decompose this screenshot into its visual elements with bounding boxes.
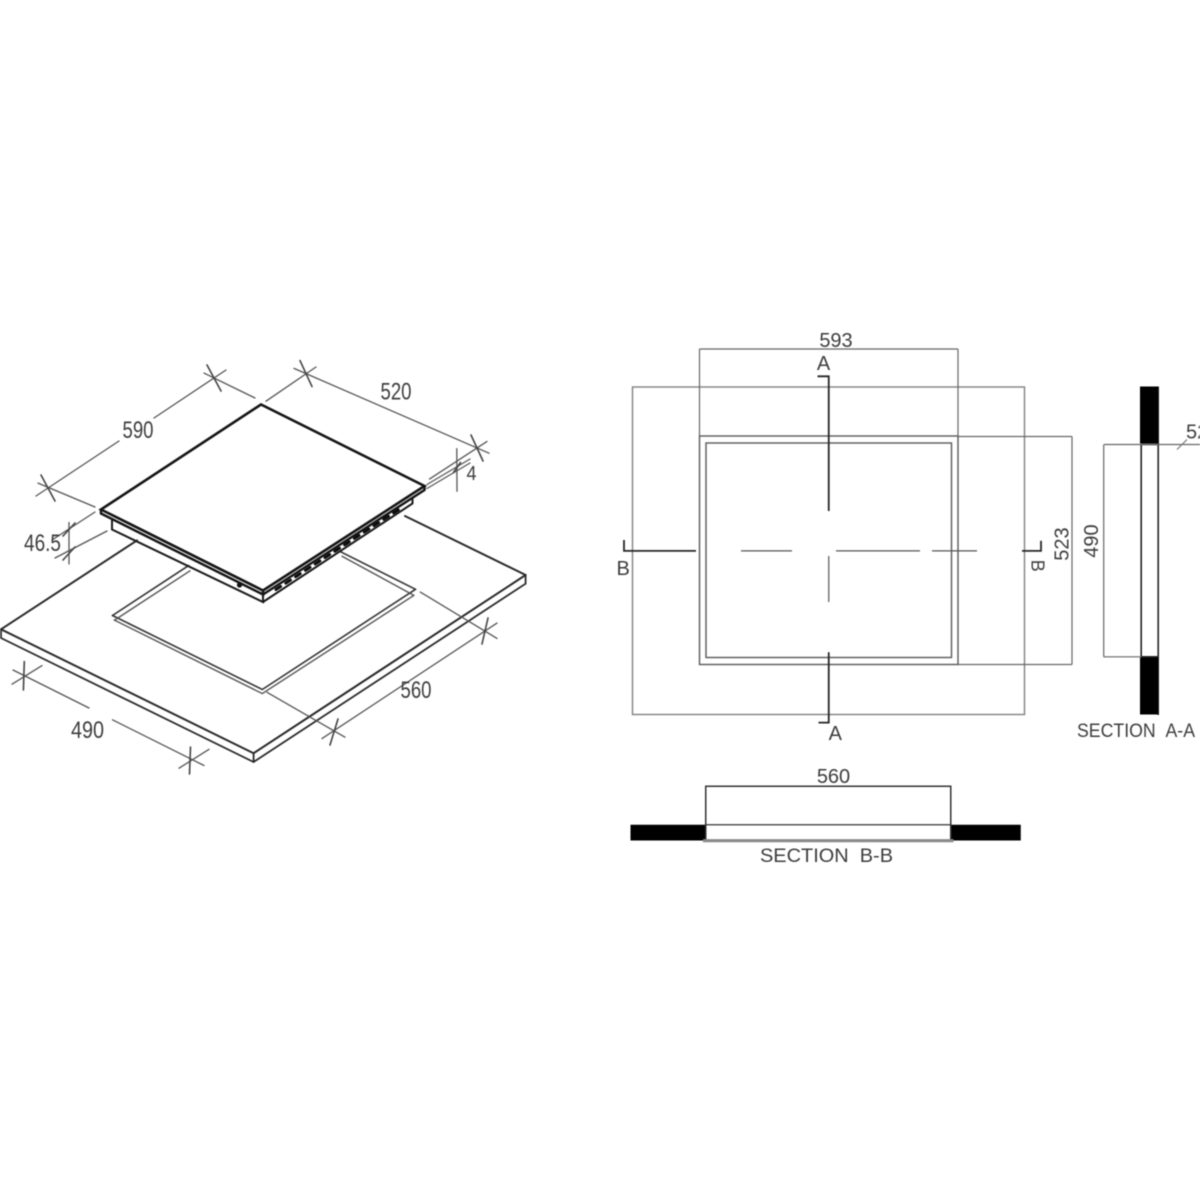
svg-text:52: 52 [1186, 422, 1200, 444]
svg-text:560: 560 [401, 677, 432, 704]
svg-text:B: B [617, 558, 630, 580]
svg-text:590: 590 [123, 417, 154, 444]
svg-text:490: 490 [71, 717, 104, 744]
svg-text:A: A [829, 723, 843, 745]
svg-text:B: B [1028, 560, 1048, 572]
svg-text:SECTION A-A: SECTION A-A [1077, 721, 1195, 742]
svg-text:520: 520 [381, 379, 412, 406]
svg-text:523: 523 [1052, 527, 1074, 560]
svg-text:593: 593 [819, 330, 852, 352]
svg-text:A: A [817, 353, 831, 375]
svg-text:SECTION B-B: SECTION B-B [760, 846, 893, 867]
svg-text:490: 490 [1081, 524, 1103, 557]
svg-text:46.5: 46.5 [24, 530, 61, 557]
svg-text:560: 560 [817, 766, 850, 788]
svg-text:4: 4 [467, 463, 477, 485]
